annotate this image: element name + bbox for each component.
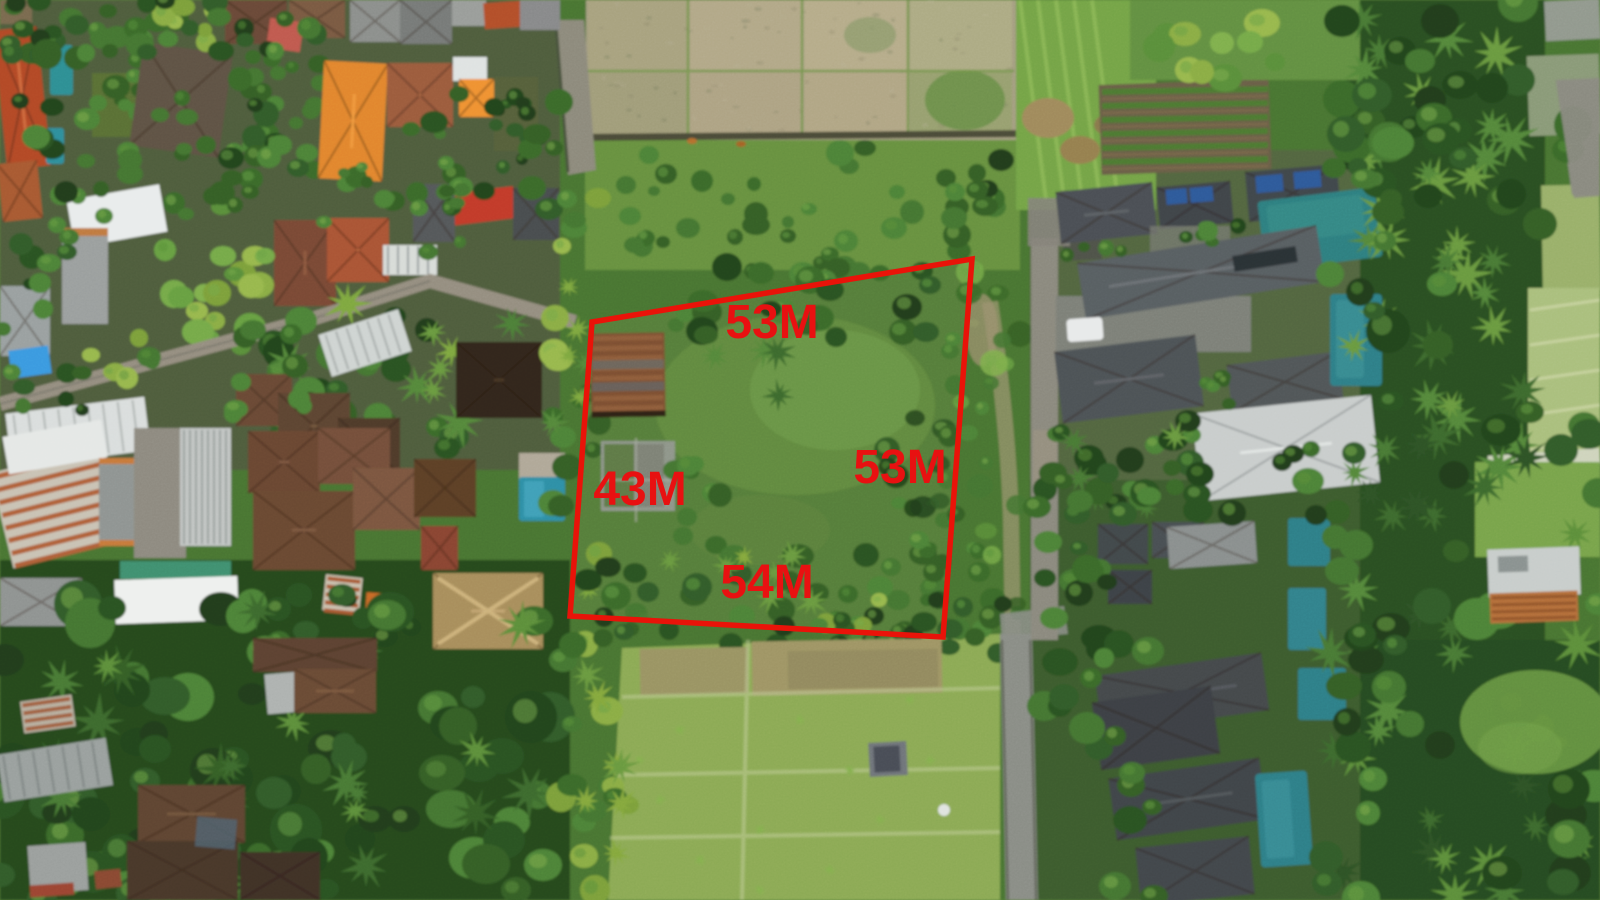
svg-text:54M: 54M bbox=[720, 556, 813, 609]
svg-text:53M: 53M bbox=[853, 441, 946, 494]
svg-text:43M: 43M bbox=[593, 463, 686, 516]
svg-text:53M: 53M bbox=[725, 296, 818, 349]
